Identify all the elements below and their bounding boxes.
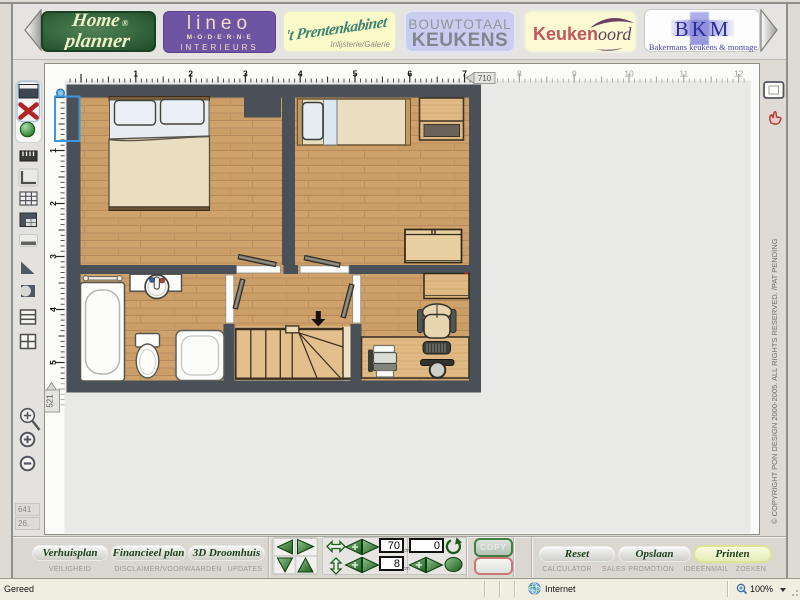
svg-text:© COPYRIGHT PON DESIGN 2000-20: © COPYRIGHT PON DESIGN 2000-2005. ALL RI… bbox=[770, 238, 779, 524]
svg-text:8: 8 bbox=[517, 69, 522, 79]
svg-text:10: 10 bbox=[624, 69, 634, 79]
svg-text:5: 5 bbox=[353, 69, 358, 79]
svg-text:4: 4 bbox=[48, 307, 58, 312]
svg-text:12: 12 bbox=[734, 69, 744, 79]
svg-text:3: 3 bbox=[48, 254, 58, 259]
svg-text:3: 3 bbox=[243, 69, 248, 79]
svg-text:1: 1 bbox=[48, 148, 58, 153]
svg-text:710: 710 bbox=[478, 74, 492, 83]
svg-text:4: 4 bbox=[298, 69, 303, 79]
svg-text:9: 9 bbox=[572, 69, 577, 79]
svg-text:2: 2 bbox=[188, 69, 193, 79]
svg-text:7: 7 bbox=[462, 69, 467, 79]
svg-text:1: 1 bbox=[133, 69, 138, 79]
svg-text:2: 2 bbox=[48, 201, 58, 206]
svg-text:5: 5 bbox=[48, 360, 58, 365]
svg-text:11: 11 bbox=[679, 69, 688, 79]
svg-text:521: 521 bbox=[46, 394, 55, 408]
svg-text:6: 6 bbox=[407, 69, 412, 79]
